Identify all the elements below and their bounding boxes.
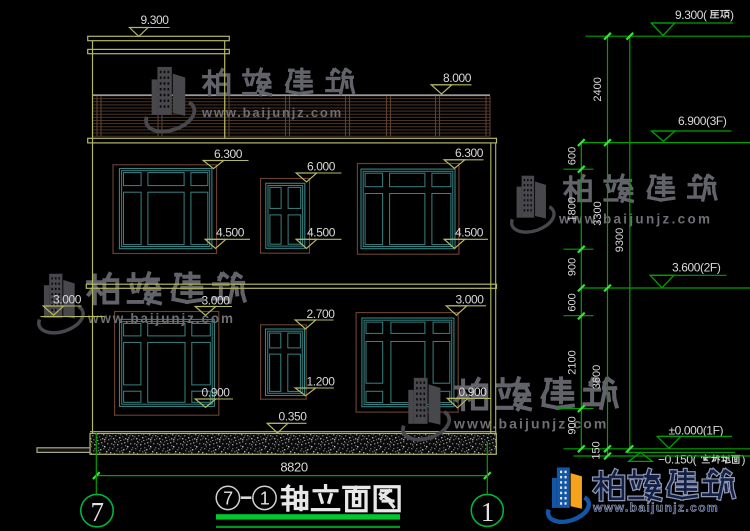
- svg-text:www.baijunjz.com: www.baijunjz.com: [453, 416, 608, 432]
- svg-text:www.baijunjz.com: www.baijunjz.com: [201, 105, 343, 120]
- svg-text:9.300: 9.300: [141, 13, 170, 27]
- svg-text:8.000: 8.000: [443, 71, 472, 85]
- svg-text:7: 7: [90, 497, 103, 527]
- svg-text:4.500: 4.500: [307, 226, 336, 240]
- svg-text:±0.000(1F): ±0.000(1F): [669, 423, 724, 437]
- svg-text:6.900(3F): 6.900(3F): [678, 114, 727, 128]
- svg-text:3.000: 3.000: [202, 294, 231, 308]
- svg-text:): ): [742, 453, 746, 467]
- svg-text:www.baijunjz.com: www.baijunjz.com: [87, 311, 235, 326]
- svg-text:4.500: 4.500: [216, 226, 245, 240]
- svg-text:3.000: 3.000: [456, 293, 485, 307]
- svg-text:1: 1: [260, 488, 270, 508]
- svg-text:4.500: 4.500: [455, 226, 484, 240]
- svg-text:1: 1: [481, 497, 494, 527]
- svg-text:1.200: 1.200: [307, 375, 336, 389]
- svg-text:3300: 3300: [592, 201, 604, 225]
- svg-text:0.900: 0.900: [459, 385, 488, 399]
- svg-text:3.000: 3.000: [53, 293, 82, 307]
- svg-text:900: 900: [567, 416, 579, 434]
- svg-text:7: 7: [223, 488, 233, 508]
- svg-text:): ): [730, 8, 734, 22]
- svg-text:2400: 2400: [592, 77, 604, 101]
- svg-text:3.600(2F): 3.600(2F): [672, 260, 721, 274]
- svg-text:9.300(: 9.300(: [675, 8, 707, 22]
- svg-text:600: 600: [567, 293, 579, 311]
- svg-text:900: 900: [567, 258, 579, 276]
- svg-text:6.300: 6.300: [455, 146, 484, 160]
- svg-text:6.300: 6.300: [214, 147, 243, 161]
- svg-text:www.baijunjz.com: www.baijunjz.com: [592, 501, 719, 515]
- svg-text:−0.150(: −0.150(: [658, 453, 697, 467]
- svg-text:600: 600: [567, 147, 579, 165]
- svg-text:8820: 8820: [280, 460, 307, 475]
- svg-text:2.700: 2.700: [307, 307, 336, 321]
- svg-text:6.000: 6.000: [307, 160, 336, 174]
- svg-text:9300: 9300: [614, 228, 626, 252]
- svg-text:2100: 2100: [567, 350, 579, 374]
- svg-text:0.900: 0.900: [202, 386, 231, 400]
- svg-text:3600: 3600: [591, 365, 603, 389]
- svg-text:0.350: 0.350: [279, 410, 308, 424]
- svg-text:1800: 1800: [567, 197, 579, 221]
- svg-text:150: 150: [590, 441, 602, 459]
